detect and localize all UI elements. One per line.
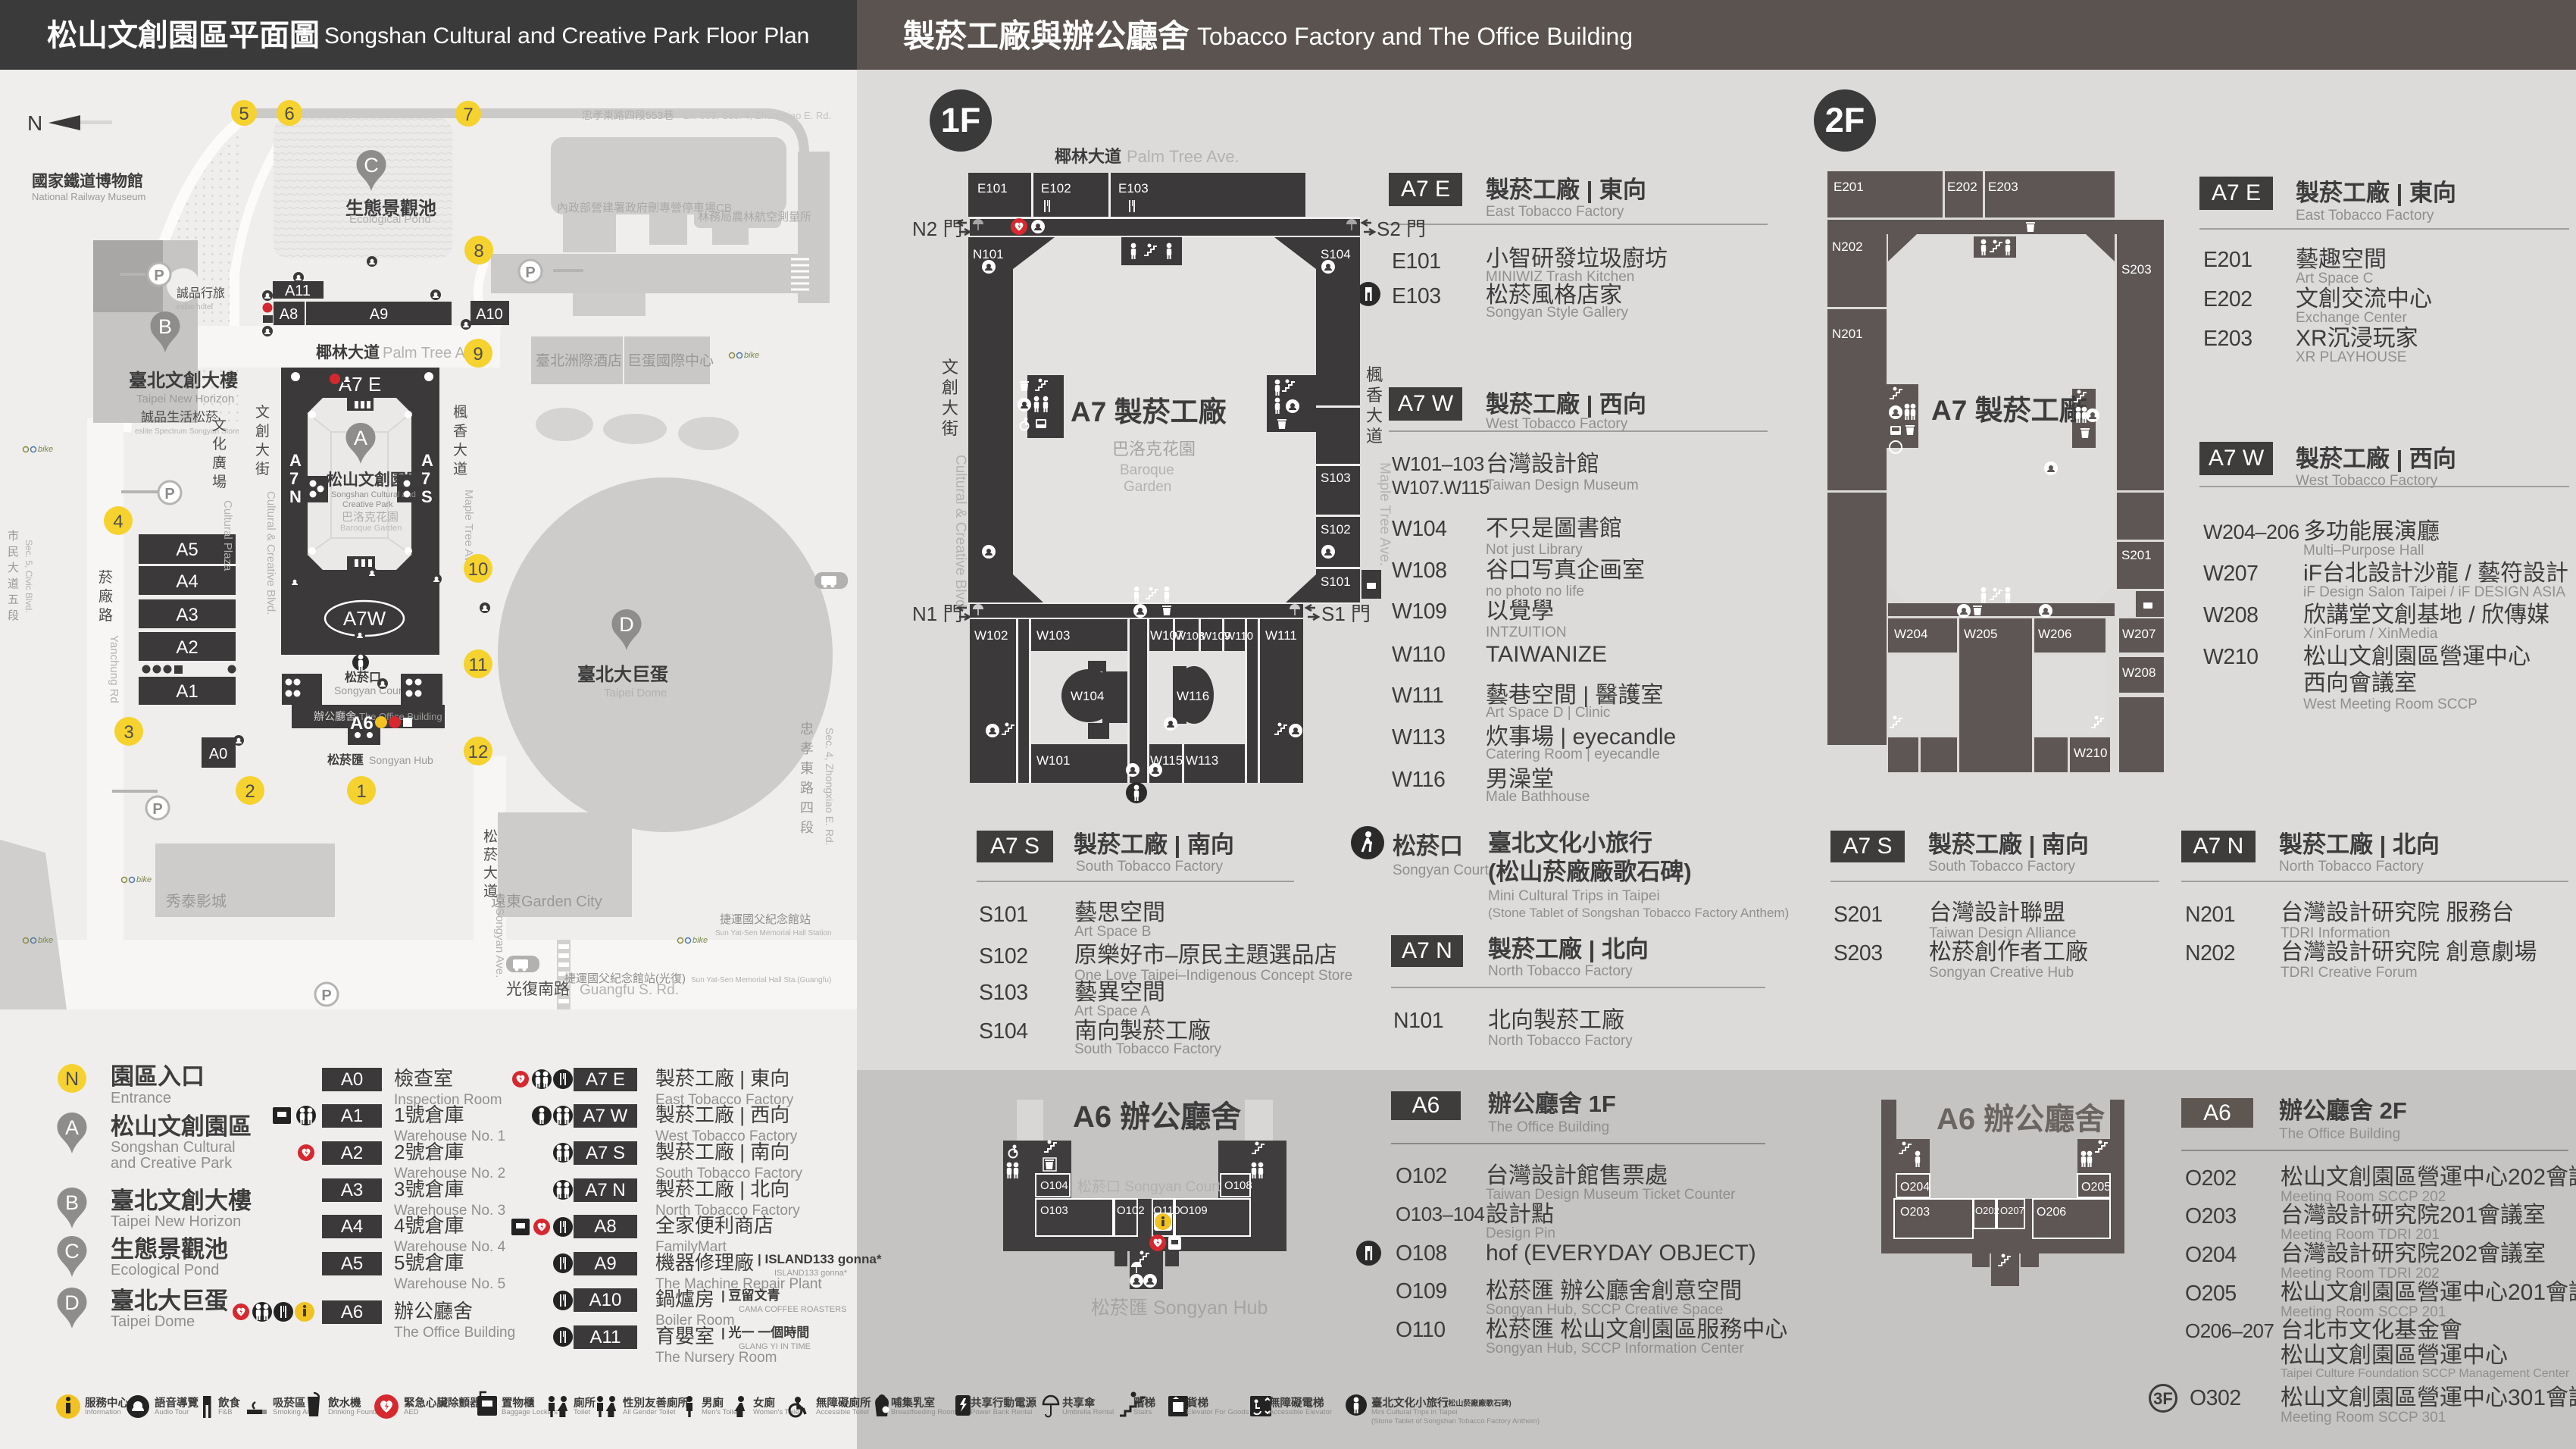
svg-text:O202: O202 (1975, 1205, 1999, 1216)
svg-text:1: 1 (356, 781, 366, 802)
svg-text:W101: W101 (1036, 753, 1070, 768)
svg-text:道: 道 (453, 461, 467, 477)
svg-text:忠: 忠 (800, 721, 814, 737)
svg-text:Taipei Dome: Taipei Dome (604, 687, 667, 699)
svg-text:香: 香 (453, 423, 467, 440)
svg-text:A3: A3 (176, 605, 198, 625)
svg-text:A2: A2 (176, 637, 198, 658)
svg-text:Power Bank Rental: Power Bank Rental (971, 1408, 1032, 1416)
svg-text:S102: S102 (1321, 522, 1351, 537)
svg-text:W204: W204 (1894, 627, 1927, 641)
svg-text:街: 街 (942, 419, 958, 438)
svg-text:路: 路 (98, 607, 113, 624)
svg-text:巴洛克花園: 巴洛克花園 (1112, 440, 1196, 458)
svg-text:場: 場 (212, 474, 227, 490)
svg-text:Cultural & Creative Blvd.: Cultural & Creative Blvd. (264, 491, 277, 615)
svg-text:C: C (64, 1240, 80, 1263)
svg-text:Songyan Court: Songyan Court (334, 684, 405, 696)
svg-text:N201: N201 (1832, 327, 1863, 341)
svg-text:秀泰影城: 秀泰影城 (166, 893, 227, 910)
svg-text:Taipei New Horizon: Taipei New Horizon (136, 393, 234, 405)
svg-text:S104: S104 (1321, 247, 1351, 261)
svg-text:E201: E201 (1834, 180, 1864, 194)
svg-text:S103: S103 (1321, 471, 1351, 485)
svg-text:W206: W206 (2038, 627, 2071, 641)
svg-text:大: 大 (453, 442, 467, 458)
svg-text:7: 7 (421, 469, 430, 488)
svg-text:Accessible Elevator: Accessible Elevator (1269, 1408, 1332, 1416)
svg-text:W104: W104 (1071, 689, 1104, 703)
svg-text:Palm Tree Ave.: Palm Tree Ave. (1127, 147, 1240, 166)
svg-text:A10: A10 (476, 306, 503, 323)
svg-text:A: A (421, 451, 433, 470)
svg-text:9: 9 (473, 344, 483, 365)
svg-text:4: 4 (113, 512, 123, 532)
svg-text:S201: S201 (2121, 548, 2152, 562)
svg-text:O206: O206 (2037, 1206, 2066, 1219)
svg-text:(松山菸廠廠歌石碑): (松山菸廠廠歌石碑) (1446, 1398, 1512, 1408)
svg-text:Ecological Pond: Ecological Pond (349, 213, 431, 226)
svg-text:E103: E103 (1118, 181, 1149, 196)
svg-text:臺北文創大樓: 臺北文創大樓 (129, 370, 238, 391)
svg-text:菸: 菸 (98, 569, 113, 586)
svg-text:E203: E203 (1988, 180, 2018, 194)
svg-text:文: 文 (212, 417, 227, 433)
svg-text:Stairs: Stairs (1133, 1408, 1152, 1416)
svg-text:文: 文 (255, 404, 270, 421)
svg-text:S2 門: S2 門 (1377, 218, 1426, 240)
svg-text:創: 創 (942, 378, 958, 397)
svg-text:廠: 廠 (98, 587, 113, 605)
svg-text:Songyan Ave.: Songyan Ave. (493, 908, 506, 978)
svg-text:捷運國父紀念館站(光復): 捷運國父紀念館站(光復) (564, 972, 686, 985)
svg-text:Toilet: Toilet (574, 1408, 591, 1416)
svg-text:楓: 楓 (453, 404, 467, 421)
svg-text:D: D (619, 613, 634, 636)
svg-text:誠品行旅: 誠品行旅 (177, 286, 225, 300)
svg-text:松菸口: 松菸口 (345, 670, 381, 684)
svg-text:巴洛克花園: 巴洛克花園 (342, 511, 399, 524)
svg-text:Creative Park: Creative Park (342, 500, 393, 509)
svg-text:Sun Yat-Sen Memorial Hall Sta.: Sun Yat-Sen Memorial Hall Sta.(Guangfu) (691, 976, 831, 984)
svg-text:N: N (65, 1069, 79, 1090)
svg-text:(Stone Tablet of Songshan Toba: (Stone Tablet of Songshan Tobacco Factor… (1371, 1417, 1540, 1426)
svg-text:忠孝東路四段553巷: 忠孝東路四段553巷 (582, 109, 674, 121)
svg-text:道: 道 (1366, 427, 1383, 446)
svg-text:12: 12 (468, 742, 489, 762)
svg-text:A7 製菸工廠: A7 製菸工廠 (1931, 394, 2087, 426)
svg-text:Baroque: Baroque (1120, 462, 1174, 478)
svg-text:道: 道 (483, 883, 498, 900)
svg-text:Umbrella Rental: Umbrella Rental (1062, 1408, 1114, 1416)
svg-text:A: A (354, 427, 367, 449)
svg-text:Cultural & Creative Blvd.: Cultural & Creative Blvd. (952, 455, 968, 612)
svg-text:O103: O103 (1040, 1204, 1068, 1217)
svg-text:A4: A4 (176, 571, 198, 592)
svg-text:O205: O205 (2081, 1181, 2111, 1194)
svg-text:B: B (65, 1191, 79, 1214)
svg-text:遠東Garden City: 遠東Garden City (491, 893, 602, 910)
svg-text:民: 民 (8, 546, 19, 559)
svg-text:W111: W111 (1265, 628, 1297, 643)
svg-text:Ln. 553, Sec. 4, Zhongxiao E.: Ln. 553, Sec. 4, Zhongxiao E. Rd. (683, 110, 831, 121)
svg-text:AED: AED (404, 1408, 419, 1416)
svg-text:A8: A8 (280, 306, 298, 323)
svg-text:段: 段 (800, 820, 814, 835)
svg-text:臺北大巨蛋: 臺北大巨蛋 (577, 665, 668, 685)
svg-text:Elevator For Goods: Elevator For Goods (1186, 1408, 1249, 1416)
svg-text:段: 段 (8, 609, 19, 622)
svg-text:文: 文 (942, 358, 958, 377)
svg-text:五: 五 (8, 593, 19, 606)
svg-text:All Gender Toilet: All Gender Toilet (623, 1408, 676, 1416)
svg-text:林務局農林航空測量所: 林務局農林航空測量所 (698, 211, 811, 224)
svg-text:椰林大道: 椰林大道 (1055, 147, 1121, 166)
svg-text:大: 大 (942, 399, 958, 418)
svg-text:菸: 菸 (483, 847, 498, 863)
svg-text:A1: A1 (176, 681, 198, 702)
svg-text:D: D (64, 1291, 80, 1314)
svg-text:Maple Tree Ave.: Maple Tree Ave. (1377, 462, 1393, 566)
svg-text:N: N (27, 111, 42, 135)
svg-text:大: 大 (255, 442, 270, 458)
svg-text:大: 大 (8, 562, 19, 574)
svg-text:C: C (364, 154, 379, 177)
svg-text:A6: A6 (350, 713, 374, 734)
svg-text:A11: A11 (285, 283, 311, 299)
svg-text:W113: W113 (1186, 753, 1218, 768)
svg-text:A: A (65, 1116, 79, 1139)
svg-text:A9: A9 (370, 306, 388, 323)
svg-text:Baroque Garden: Baroque Garden (340, 524, 402, 533)
svg-text:Accessible Toilet: Accessible Toilet (816, 1408, 869, 1416)
svg-text:W210: W210 (2074, 746, 2107, 760)
svg-text:Audio Tour: Audio Tour (155, 1408, 189, 1416)
svg-text:E202: E202 (1947, 180, 1977, 194)
svg-text:N2 門: N2 門 (912, 218, 962, 240)
svg-text:巨蛋國際中心: 巨蛋國際中心 (627, 352, 714, 369)
svg-text:大: 大 (1366, 406, 1383, 425)
svg-text:Sec. 4, Zhongxiao E. Rd.: Sec. 4, Zhongxiao E. Rd. (824, 728, 836, 846)
svg-text:O207: O207 (2000, 1205, 2024, 1216)
svg-text:Information: Information (85, 1408, 121, 1416)
svg-text:S101: S101 (1321, 574, 1351, 589)
svg-text:A: A (289, 451, 302, 470)
svg-text:松: 松 (483, 828, 498, 845)
svg-text:大: 大 (483, 865, 498, 881)
svg-text:松菸口 Songyan Court: 松菸口 Songyan Court (1077, 1178, 1221, 1195)
svg-text:7: 7 (289, 469, 299, 488)
svg-text:E102: E102 (1041, 181, 1071, 196)
svg-text:市: 市 (8, 530, 19, 543)
svg-text:A5: A5 (176, 540, 198, 560)
svg-text:椰林大道: 椰林大道 (316, 343, 380, 361)
svg-text:O102: O102 (1117, 1204, 1145, 1217)
svg-text:O104: O104 (1040, 1179, 1068, 1192)
svg-text:O204: O204 (1900, 1181, 1930, 1194)
svg-text:N202: N202 (1832, 239, 1863, 254)
svg-text:街: 街 (255, 461, 270, 477)
svg-text:S: S (421, 487, 433, 506)
svg-text:O109: O109 (1180, 1204, 1208, 1217)
svg-text:Garden: Garden (1124, 479, 1171, 495)
svg-text:創: 創 (255, 423, 270, 440)
svg-text:W205: W205 (1964, 627, 1997, 641)
svg-text:松菸匯: 松菸匯 (327, 753, 364, 767)
svg-text:孝: 孝 (800, 741, 814, 756)
svg-text:National Railway Museum: National Railway Museum (32, 191, 145, 202)
svg-text:誠品生活松菸: 誠品生活松菸 (141, 410, 218, 424)
svg-text:臺北洲際酒店: 臺北洲際酒店 (536, 352, 622, 369)
svg-text:Songyan Hub: Songyan Hub (369, 754, 433, 766)
svg-text:W208: W208 (2122, 665, 2156, 680)
svg-text:6: 6 (284, 104, 294, 124)
svg-text:W116: W116 (1177, 689, 1209, 703)
svg-text:Songshan Cultural and: Songshan Cultural and (331, 490, 416, 499)
svg-text:E101: E101 (977, 181, 1008, 196)
svg-text:道: 道 (8, 577, 19, 590)
svg-text:Yanchung Rd: Yanchung Rd (108, 635, 120, 703)
svg-text:W207: W207 (2122, 627, 2156, 641)
svg-text:W110: W110 (1224, 630, 1253, 643)
svg-text:N: N (289, 487, 302, 506)
svg-text:東: 東 (800, 761, 814, 776)
svg-text:A0: A0 (209, 746, 227, 762)
svg-text:A7 製菸工廠: A7 製菸工廠 (1071, 396, 1227, 427)
svg-text:N101: N101 (973, 247, 1004, 261)
svg-text:Sec. 5, Civic Blvd.: Sec. 5, Civic Blvd. (23, 540, 34, 613)
svg-text:11: 11 (469, 655, 488, 675)
svg-text:楓: 楓 (1366, 365, 1383, 384)
svg-text:S203: S203 (2121, 262, 2152, 277)
svg-text:Breastfeeding Room: Breastfeeding Room (891, 1408, 957, 1416)
svg-text:eslite hotel: eslite hotel (177, 303, 213, 311)
svg-text:3: 3 (123, 722, 133, 743)
svg-text:Men's Toilet: Men's Toilet (702, 1408, 739, 1416)
svg-text:W103: W103 (1036, 628, 1070, 643)
svg-text:香: 香 (1366, 386, 1383, 405)
svg-text:7: 7 (463, 105, 473, 125)
svg-text:O203: O203 (1900, 1206, 1930, 1219)
svg-text:8: 8 (474, 241, 483, 261)
svg-text:B: B (158, 315, 172, 338)
svg-text:化: 化 (212, 436, 227, 452)
svg-text:Cultural Plaza: Cultural Plaza (221, 500, 234, 571)
svg-text:光復南路: 光復南路 (506, 981, 570, 998)
svg-text:2: 2 (245, 781, 255, 802)
svg-text:10: 10 (468, 559, 489, 580)
svg-text:捷運國父紀念館站: 捷運國父紀念館站 (720, 912, 811, 926)
svg-text:國家鐵道博物館: 國家鐵道博物館 (32, 172, 143, 190)
svg-text:Mini Cultural Trips in Taipei: Mini Cultural Trips in Taipei (1371, 1408, 1457, 1416)
svg-text:O108: O108 (1224, 1179, 1252, 1192)
svg-text:A7W: A7W (343, 607, 386, 630)
svg-text:Sun Yat-Sen Memorial Hall Stat: Sun Yat-Sen Memorial Hall Station (715, 929, 832, 937)
svg-text:W102: W102 (974, 628, 1008, 643)
svg-text:廣: 廣 (212, 455, 227, 471)
svg-text:S1 門: S1 門 (1321, 602, 1371, 625)
svg-text:路: 路 (800, 781, 814, 796)
svg-text:F&B: F&B (218, 1408, 232, 1416)
svg-text:四: 四 (800, 800, 814, 815)
svg-text:5: 5 (239, 104, 249, 124)
